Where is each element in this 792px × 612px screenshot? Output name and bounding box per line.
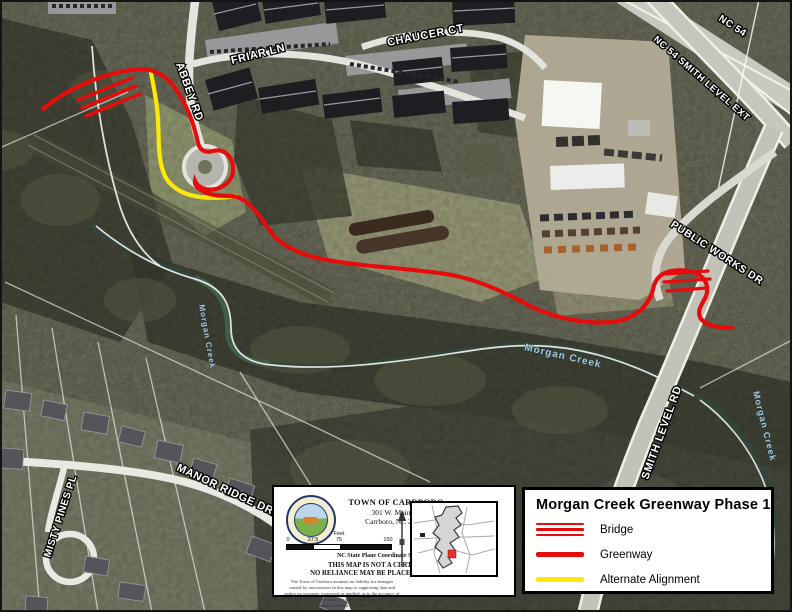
legend-label: Alternate Alignment xyxy=(600,574,700,586)
town-boundary-shape xyxy=(433,506,462,568)
locator-inset-map xyxy=(410,501,498,577)
greenway-line-icon xyxy=(536,552,584,557)
legend-item-bridge: Bridge xyxy=(525,517,771,542)
scale-tick: 0 xyxy=(286,537,289,543)
map-sheet: ABBEY RD FRIAR LN CHAUCER CT NC 54 NC 54… xyxy=(0,0,792,612)
legend-title: Morgan Creek Greenway Phase 1 xyxy=(536,497,771,513)
north-arrow-icon xyxy=(395,509,409,571)
project-location-marker xyxy=(448,550,456,558)
legend: Morgan Creek Greenway Phase 1 Bridge Gre… xyxy=(522,487,774,594)
bridge-hatch-icon xyxy=(536,523,584,537)
scale-bar: Feet 0 37.5 75 150 xyxy=(286,531,392,550)
legend-label: Bridge xyxy=(600,524,633,536)
scale-tick: 75 xyxy=(336,537,342,543)
legend-item-greenway: Greenway xyxy=(525,542,771,567)
legend-label: Greenway xyxy=(600,549,652,561)
alternate-line-icon xyxy=(536,577,584,582)
scale-tick: 150 xyxy=(383,537,392,543)
title-block: TOWN OF CARRBORO 301 W. Main St. Carrbor… xyxy=(272,485,516,597)
disclaimer-fine-print: The Town of Carrboro assumes no liabilit… xyxy=(284,579,400,609)
scale-tick: 37.5 xyxy=(308,537,319,543)
legend-item-alternate: Alternate Alignment xyxy=(525,567,771,592)
